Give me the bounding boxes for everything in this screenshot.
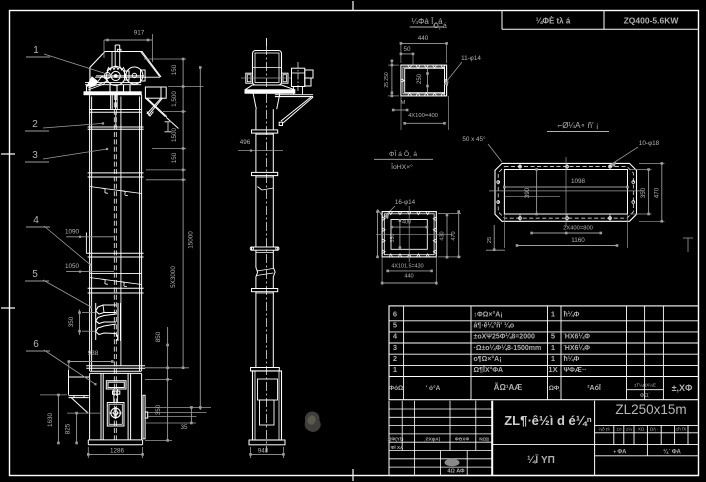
svg-text:825: 825 — [65, 423, 72, 434]
svg-text:ΨΦÆ··: ΨΦÆ·· — [564, 367, 587, 374]
svg-text:±ο: ±ο — [617, 427, 622, 432]
svg-text:496: 496 — [240, 139, 251, 146]
svg-text:M: M — [401, 100, 406, 106]
svg-text:±ħ ľΧ: ±ħ ľΧ — [676, 427, 687, 432]
svg-text:±οΧΨ25Φ¼8=2000: ±οΧΨ25Φ¼8=2000 — [474, 333, 535, 341]
svg-text:¼ΦÈ tλ á: ¼ΦÈ tλ á — [536, 17, 571, 26]
svg-text:1: 1 — [393, 365, 397, 374]
svg-text:350: 350 — [155, 404, 162, 415]
svg-text:ΉΧ6¼Φ: ΉΧ6¼Φ — [564, 333, 591, 341]
svg-text:850: 850 — [155, 331, 162, 342]
svg-text:ΦĪ á Ō¸ á: ΦĪ á Ō¸ á — [389, 150, 417, 158]
svg-text:1050: 1050 — [65, 263, 80, 270]
svg-text:Ω¶ĪΧ°ΦΑ: Ω¶ĪΧ°ΦΑ — [474, 366, 504, 374]
svg-text:′ ó°Α: ′ ó°Α — [426, 384, 441, 392]
svg-text:ZQ400-5.6KW: ZQ400-5.6KW — [624, 16, 680, 26]
svg-text:1: 1 — [551, 343, 555, 352]
svg-text:±,XΦ: ±,XΦ — [672, 383, 693, 393]
svg-text:¼Φá Ī¸ á: ¼Φá Ī¸ á — [411, 17, 443, 26]
svg-text:150: 150 — [171, 64, 178, 75]
svg-text:á¶·ê¼°ñ′ ¼ο: á¶·ê¼°ñ′ ¼ο — [474, 322, 515, 330]
svg-text:ο¶Ω×°Α¡: ο¶Ω×°Α¡ — [474, 355, 502, 363]
svg-text:4X101.5=430: 4X101.5=430 — [391, 264, 423, 270]
svg-text:50 x 45°: 50 x 45° — [462, 135, 486, 143]
svg-text:¸ƧΧψΑļ: ¸ƧΧψΑļ — [424, 437, 440, 442]
svg-text:16-φ14: 16-φ14 — [395, 199, 416, 206]
svg-text:430: 430 — [440, 231, 446, 240]
svg-text:35: 35 — [180, 424, 188, 431]
svg-text:11-φ14: 11-φ14 — [461, 55, 481, 62]
svg-text:¼ʹ ΦΑ: ¼ʹ ΦΑ — [663, 449, 681, 456]
svg-text:·Ω±ο¼Φ¼8-1500mm: ·Ω±ο¼Φ¼8-1500mm — [474, 344, 542, 352]
svg-text:6: 6 — [33, 339, 39, 350]
svg-text:440: 440 — [418, 35, 429, 42]
svg-text:1098: 1098 — [571, 178, 586, 185]
svg-text:25: 25 — [487, 237, 493, 243]
svg-text:1: 1 — [551, 310, 555, 319]
svg-text:3: 3 — [32, 150, 38, 161]
svg-text:ĪοΗΧ×°: ĪοΗΧ×° — [391, 163, 413, 171]
svg-text:ΦóΩ: ΦóΩ — [389, 385, 404, 392]
svg-text:1: 1 — [33, 45, 39, 56]
svg-text:• ΦΑ: • ΦΑ — [614, 450, 628, 456]
svg-text:350: 350 — [640, 187, 647, 198]
svg-text:ΦΘXΦ: ΦΘXΦ — [455, 437, 469, 442]
svg-text:1090: 1090 — [65, 229, 80, 236]
svg-text:ΦΩ´̣: ΦΩ´̣ — [640, 393, 650, 399]
svg-text:50: 50 — [403, 46, 411, 53]
svg-text:2: 2 — [393, 354, 397, 363]
svg-text:XΩ: XΩ — [638, 427, 645, 432]
svg-text:ΦĪ ΧΑ: ΦĪ ΧΑ — [391, 444, 404, 450]
svg-text:1630: 1630 — [47, 413, 54, 428]
svg-text:²ΑóĪ: ²ΑóĪ — [587, 384, 602, 392]
svg-text:¼δ ŗś: ¼δ ŗś — [598, 427, 610, 432]
svg-text:1X: 1X — [548, 365, 557, 374]
svg-text:1286: 1286 — [110, 448, 125, 455]
svg-text:ΩΛ ̣·: ΩΛ ̣· — [650, 427, 659, 432]
svg-text:470: 470 — [451, 231, 457, 240]
svg-text:10-φ18: 10-φ18 — [639, 140, 660, 147]
svg-text:ħ¼Φ: ħ¼Φ — [564, 355, 580, 363]
svg-text:ħ¼Φ: ħ¼Φ — [564, 311, 580, 319]
svg-text:948: 948 — [258, 448, 269, 455]
svg-text:5: 5 — [393, 321, 397, 330]
svg-text:4Ω ΑΦ: 4Ω ΑΦ — [447, 469, 465, 475]
svg-text:15000: 15000 — [188, 231, 195, 249]
svg-text:917: 917 — [134, 30, 145, 37]
svg-text:6: 6 — [393, 310, 397, 319]
svg-text:1160: 1160 — [571, 237, 585, 244]
svg-text:4X100=400: 4X100=400 — [408, 113, 438, 119]
svg-text:440: 440 — [404, 274, 413, 280]
svg-text:350: 350 — [390, 234, 396, 243]
svg-text:5: 5 — [32, 269, 38, 280]
svg-text:2X400=800: 2X400=800 — [563, 226, 593, 232]
svg-text:938: 938 — [88, 350, 99, 357]
svg-text:150: 150 — [171, 152, 178, 163]
svg-text:ZL250x15m: ZL250x15m — [615, 402, 686, 417]
svg-text:25 250: 25 250 — [384, 72, 390, 88]
svg-text:5: 5 — [551, 332, 555, 341]
svg-text:¼Ī ΥΠ: ¼Ī ΥΠ — [527, 454, 555, 466]
svg-text:470: 470 — [654, 187, 661, 198]
svg-text:ΉΧ6¼Φ: ΉΧ6¼Φ — [564, 344, 591, 352]
svg-text:↕ΦΩ×°Α¡: ↕ΦΩ×°Α¡ — [474, 311, 503, 319]
svg-text:ZL¶·ê½ì d é¼ⁿ: ZL¶·ê½ì d é¼ⁿ — [504, 413, 592, 428]
svg-text:3: 3 — [393, 343, 397, 352]
svg-text:1500: 1500 — [171, 128, 178, 143]
svg-text:250: 250 — [417, 73, 423, 84]
svg-text:2: 2 — [32, 119, 38, 130]
svg-text:1,500: 1,500 — [171, 91, 178, 107]
svg-text:350: 350 — [68, 316, 75, 327]
svg-text:4: 4 — [33, 215, 39, 226]
svg-text:ΝΩļĮ: ΝΩļĮ — [479, 437, 489, 442]
svg-text:5X3000: 5X3000 — [170, 266, 177, 288]
svg-text:±¼: ±¼ — [626, 427, 632, 432]
svg-text:±Τ¼ΩΧ¼Ε: ±Τ¼ΩΧ¼Ε — [634, 383, 656, 388]
svg-text:400: 400 — [402, 220, 411, 226]
svg-text:1: 1 — [551, 354, 555, 363]
svg-text:ÃΩ¹ΑÆ: ÃΩ¹ΑÆ — [494, 383, 523, 392]
svg-text:⌐Ø¼Α∘ ñ′ ¡: ⌐Ø¼Α∘ ñ′ ¡ — [558, 121, 599, 130]
svg-text:ΩΦ̣: ΩΦ̣ — [549, 385, 561, 392]
